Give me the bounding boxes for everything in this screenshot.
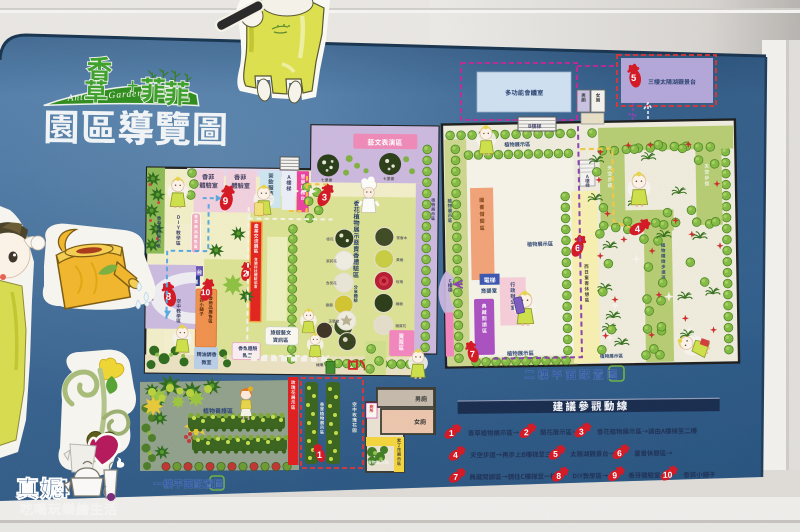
svg-text:5: 5 [631, 73, 637, 84]
svg-text:10: 10 [201, 287, 211, 297]
svg-text:4: 4 [635, 224, 641, 235]
svg-text:5: 5 [553, 449, 558, 459]
svg-text:7: 7 [470, 349, 475, 359]
svg-text:9: 9 [223, 196, 229, 207]
svg-text:2: 2 [524, 427, 529, 437]
svg-text:4: 4 [453, 450, 458, 460]
svg-text:3: 3 [579, 427, 584, 437]
svg-text:1: 1 [317, 450, 322, 460]
svg-text:9: 9 [612, 470, 617, 480]
svg-text:8: 8 [556, 471, 561, 481]
svg-text:3: 3 [322, 192, 327, 203]
svg-text:10: 10 [663, 470, 673, 480]
svg-text:6: 6 [617, 448, 622, 458]
svg-text:1: 1 [449, 428, 454, 438]
svg-text:7: 7 [453, 472, 458, 482]
